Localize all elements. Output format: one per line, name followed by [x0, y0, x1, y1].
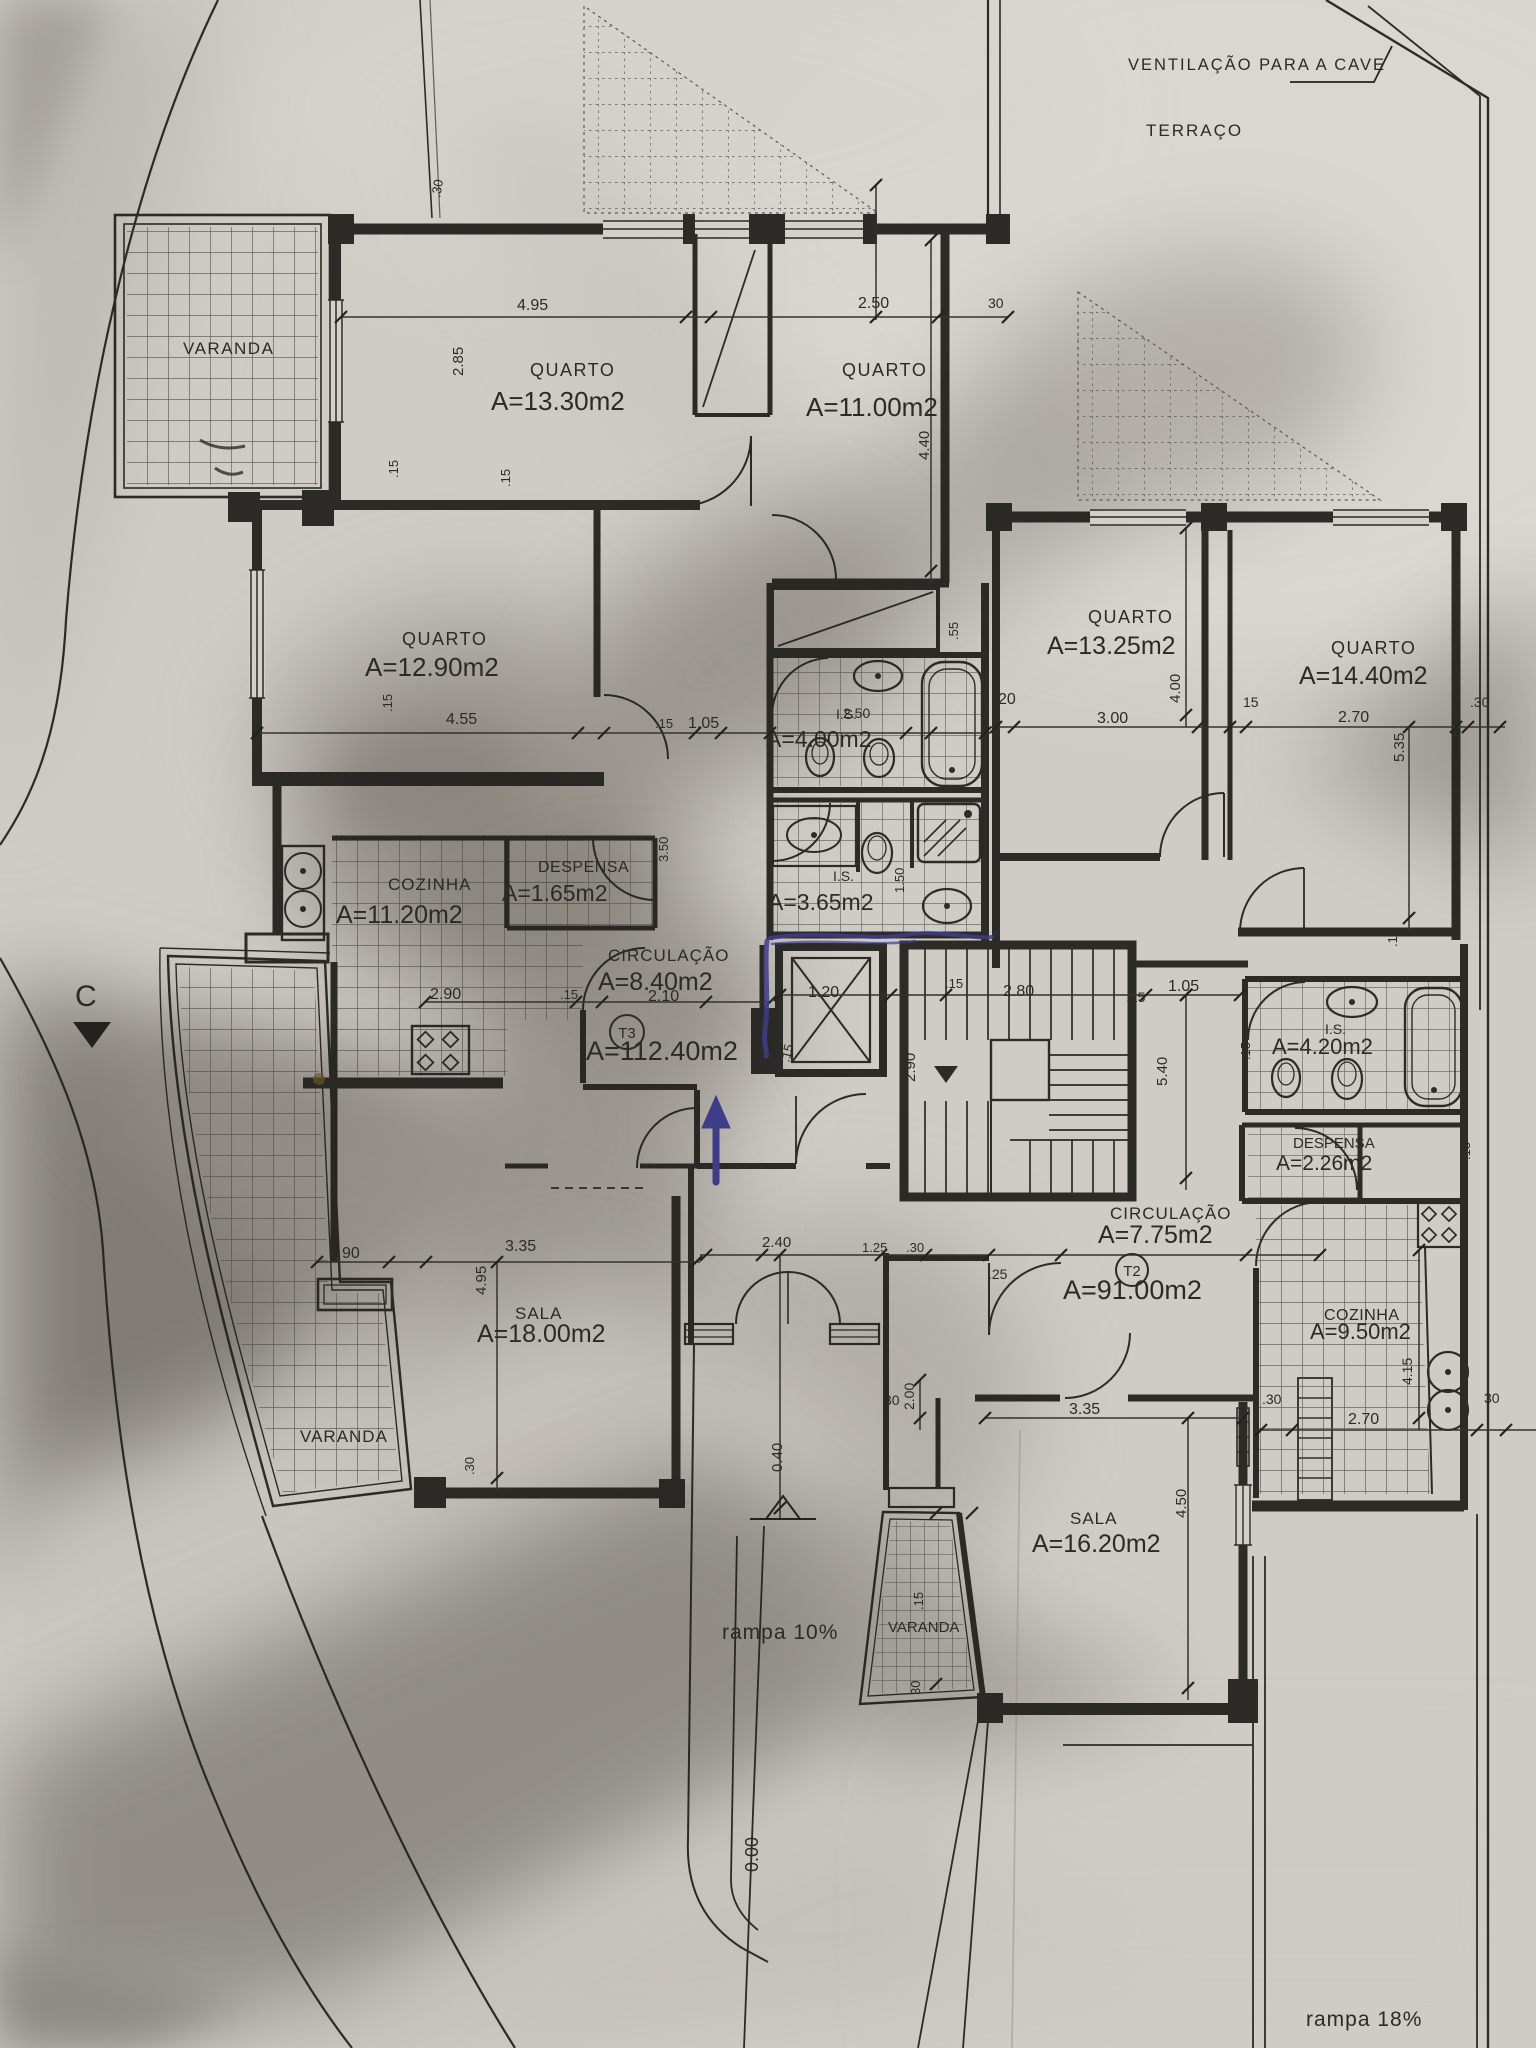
svg-text:A=4.20m2: A=4.20m2 [1272, 1034, 1373, 1059]
svg-text:.15: .15 [655, 716, 673, 731]
svg-text:.30: .30 [1470, 694, 1490, 710]
svg-text:A=12.90m2: A=12.90m2 [365, 652, 499, 682]
svg-text:A=1.65m2: A=1.65m2 [502, 880, 608, 906]
svg-text:.30: .30 [748, 1017, 763, 1035]
svg-text:4.00: 4.00 [1167, 674, 1184, 703]
svg-text:30: 30 [1484, 1390, 1500, 1406]
svg-text:3.35: 3.35 [1069, 1401, 1100, 1418]
svg-text:.15: .15 [945, 976, 963, 991]
svg-text:3.35: 3.35 [505, 1238, 536, 1255]
svg-text:2.40: 2.40 [762, 1234, 791, 1251]
svg-text:30: 30 [988, 295, 1004, 311]
svg-text:COZINHA: COZINHA [388, 875, 472, 894]
svg-text:A=16.20m2: A=16.20m2 [1032, 1530, 1161, 1558]
svg-text:5.35: 5.35 [1391, 733, 1408, 762]
svg-text:A=13.25m2: A=13.25m2 [1047, 632, 1176, 660]
svg-text:I.S.: I.S. [833, 868, 854, 884]
svg-text:.15: .15 [1458, 1142, 1473, 1160]
svg-text:4.50: 4.50 [1173, 1489, 1190, 1518]
svg-text:.15: .15 [380, 694, 395, 712]
svg-text:A=9.50m2: A=9.50m2 [1310, 1319, 1411, 1344]
svg-text:3.00: 3.00 [1097, 710, 1128, 727]
svg-text:20: 20 [998, 691, 1016, 708]
svg-text:A=2.26m2: A=2.26m2 [1276, 1152, 1372, 1175]
svg-text:A=3.65m2: A=3.65m2 [768, 889, 874, 915]
svg-text:4.55: 4.55 [446, 711, 477, 728]
svg-text:A=18.00m2: A=18.00m2 [477, 1320, 606, 1348]
svg-text:.25: .25 [1126, 989, 1146, 1005]
svg-text:.25: .25 [988, 1266, 1008, 1282]
svg-text:4.40: 4.40 [916, 431, 933, 460]
svg-text:VARANDA: VARANDA [183, 339, 274, 358]
svg-text:30: 30 [908, 1681, 923, 1695]
svg-text:CIRCULAÇÃO: CIRCULAÇÃO [608, 946, 729, 965]
svg-text:.15: .15 [911, 1592, 926, 1610]
svg-text:2.85: 2.85 [450, 347, 467, 376]
svg-text:QUARTO: QUARTO [842, 360, 927, 380]
svg-text:VENTILAÇÃO PARA A CAVE: VENTILAÇÃO PARA A CAVE [1128, 54, 1386, 74]
svg-text:T2: T2 [1123, 1263, 1141, 1280]
svg-text:T3: T3 [618, 1025, 636, 1042]
svg-text:SALA: SALA [1070, 1509, 1117, 1528]
svg-text:rampa 18%: rampa 18% [1306, 2008, 1422, 2031]
svg-text:1.05: 1.05 [1168, 978, 1199, 995]
svg-text:2.90: 2.90 [430, 986, 461, 1003]
svg-text:2.90: 2.90 [902, 1053, 919, 1082]
svg-text:4.95: 4.95 [517, 297, 548, 314]
svg-text:5.40: 5.40 [1154, 1057, 1171, 1086]
svg-text:.55: .55 [946, 622, 961, 640]
svg-text:.30: .30 [462, 1457, 477, 1475]
svg-text:0.40: 0.40 [769, 1443, 786, 1472]
svg-text:3.50: 3.50 [656, 837, 671, 862]
svg-text:A=11.00m2: A=11.00m2 [806, 392, 938, 422]
svg-text:A=112.40m2: A=112.40m2 [586, 1036, 738, 1066]
svg-text:DESPENSA: DESPENSA [538, 859, 629, 876]
svg-text:QUARTO: QUARTO [530, 360, 615, 380]
svg-text:2.00: 2.00 [901, 1383, 917, 1410]
svg-text:1.50: 1.50 [892, 868, 907, 893]
svg-text:2.70: 2.70 [1348, 1411, 1379, 1428]
svg-text:2.50: 2.50 [843, 705, 870, 721]
svg-text:2.10: 2.10 [648, 988, 679, 1005]
svg-text:QUARTO: QUARTO [402, 629, 487, 649]
svg-text:1.25: 1.25 [862, 1240, 887, 1255]
svg-text:C: C [75, 980, 97, 1013]
svg-text:A=4.00m2: A=4.00m2 [766, 726, 872, 752]
svg-text:TERRAÇO: TERRAÇO [1146, 121, 1243, 140]
svg-text:1.05: 1.05 [688, 715, 719, 732]
svg-text:.15: .15 [1238, 1042, 1253, 1060]
svg-text:DESPENSA: DESPENSA [1293, 1135, 1375, 1152]
svg-text:A=13.30m2: A=13.30m2 [491, 386, 625, 416]
svg-text:A=14.40m2: A=14.40m2 [1299, 662, 1428, 690]
svg-text:15: 15 [1243, 694, 1259, 710]
svg-text:.30: .30 [906, 1240, 924, 1255]
svg-text:4.95: 4.95 [473, 1266, 490, 1295]
svg-text:A=7.75m2: A=7.75m2 [1098, 1221, 1213, 1249]
svg-text:1.20: 1.20 [808, 984, 839, 1001]
svg-text:0.00: 0.00 [742, 1837, 762, 1872]
svg-text:4.15: 4.15 [1399, 1358, 1415, 1385]
svg-text:.15: .15 [1385, 929, 1400, 947]
svg-text:rampa 10%: rampa 10% [722, 1621, 838, 1644]
svg-text:30: 30 [884, 1392, 900, 1408]
svg-text:QUARTO: QUARTO [1331, 638, 1416, 658]
svg-text:A=11.20m2: A=11.20m2 [336, 901, 463, 929]
svg-text:VARANDA: VARANDA [300, 1427, 388, 1446]
svg-text:VARANDA: VARANDA [888, 1619, 959, 1636]
svg-text:QUARTO: QUARTO [1088, 607, 1173, 627]
svg-text:90: 90 [342, 1245, 360, 1262]
svg-text:.30: .30 [428, 178, 446, 198]
svg-text:.15: .15 [386, 460, 401, 478]
svg-text:2.70: 2.70 [1338, 709, 1369, 726]
svg-text:.15: .15 [498, 469, 513, 487]
svg-text:.30: .30 [1262, 1391, 1282, 1407]
svg-text:2.80: 2.80 [1003, 983, 1034, 1000]
svg-text:2.50: 2.50 [858, 295, 889, 312]
svg-text:.15: .15 [560, 987, 578, 1002]
